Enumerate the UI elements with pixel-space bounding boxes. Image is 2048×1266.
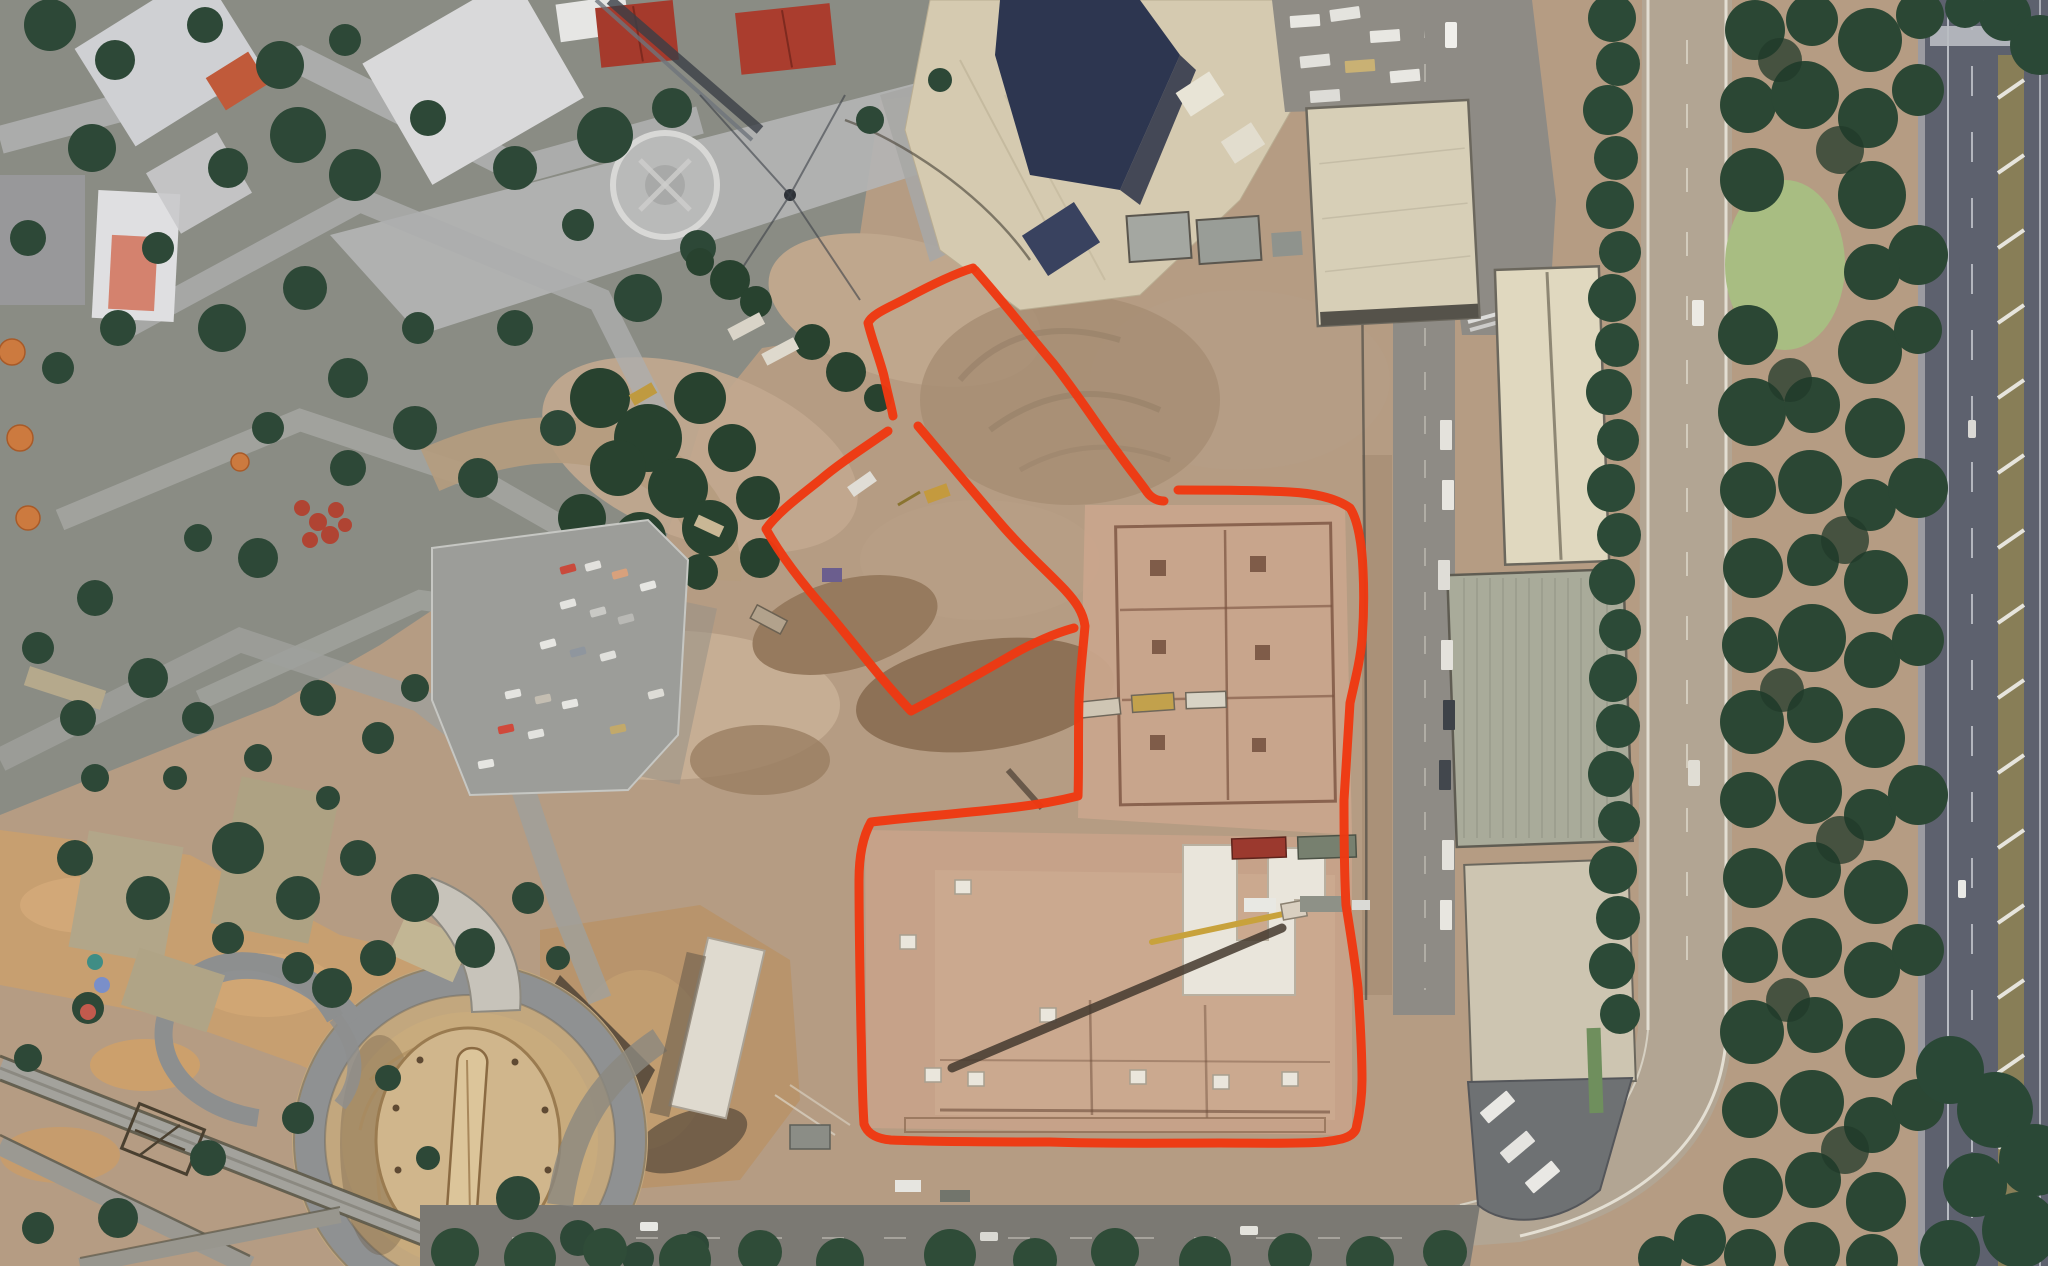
- post: [395, 1167, 402, 1174]
- site-shed: [1271, 231, 1303, 257]
- red-umbrella: [80, 1004, 96, 1020]
- trench-line: [940, 1110, 1330, 1112]
- buffer-tree-shade: [1821, 516, 1869, 564]
- park-tree: [276, 876, 320, 920]
- graded-swirl-area: [920, 295, 1220, 505]
- buffer-tree: [1778, 604, 1846, 672]
- yard-trailer: [1345, 59, 1376, 73]
- park-tree: [212, 922, 244, 954]
- equipment: [940, 1190, 970, 1202]
- buffer-tree: [1844, 244, 1900, 300]
- buffer-tree: [1892, 614, 1944, 666]
- park-tree: [496, 1176, 540, 1220]
- street-car: [1958, 880, 1966, 898]
- concrete-pad: [900, 935, 916, 949]
- park-tree: [42, 352, 74, 384]
- concrete-pad: [1040, 1008, 1056, 1022]
- park-tree: [128, 658, 168, 698]
- park-tree: [512, 882, 544, 914]
- concrete-pad: [925, 1068, 941, 1082]
- buffer-tree-shade: [1760, 668, 1804, 712]
- post: [393, 1105, 400, 1112]
- concrete-pad: [968, 1072, 984, 1086]
- haul-truck: [1186, 691, 1227, 708]
- warehouse-north: [1306, 100, 1479, 326]
- park-tree: [77, 580, 113, 616]
- small-car: [1352, 900, 1370, 910]
- street-trailer: [1438, 560, 1450, 590]
- red-umbrella: [321, 526, 339, 544]
- park-tree: [270, 107, 326, 163]
- white-van: [895, 1180, 921, 1192]
- street-tree-row: [1594, 136, 1638, 180]
- truck: [1688, 760, 1700, 786]
- street-tree-row: [1583, 85, 1633, 135]
- street-trailer: [1440, 420, 1452, 450]
- park-tree: [81, 764, 109, 792]
- preserved-tree: [674, 372, 726, 424]
- site-shed: [1197, 216, 1262, 264]
- park-tree: [493, 146, 537, 190]
- concrete-pad: [1282, 1072, 1298, 1086]
- buffer-tree: [1844, 942, 1900, 998]
- road-car: [1240, 1226, 1258, 1235]
- park-tree: [340, 840, 376, 876]
- park-tree: [187, 7, 223, 43]
- excavated-soil: [690, 725, 830, 795]
- preserved-tree: [590, 440, 646, 496]
- buffer-tree-shade: [1758, 38, 1802, 82]
- street-car: [1968, 420, 1976, 438]
- preserved-tree: [686, 248, 714, 276]
- street-tree-row: [1589, 654, 1637, 702]
- buffer-tree: [1782, 918, 1842, 978]
- post: [542, 1107, 549, 1114]
- buffer-tree: [1892, 64, 1944, 116]
- orange-dome-tent: [0, 339, 25, 365]
- park-tree: [238, 538, 278, 578]
- buffer-tree: [1845, 398, 1905, 458]
- park-tree: [283, 266, 327, 310]
- park-tree: [163, 766, 187, 790]
- park-tree: [458, 458, 498, 498]
- buffer-tree: [1846, 1172, 1906, 1232]
- park-tree: [60, 700, 96, 736]
- teal-umbrella: [87, 954, 103, 970]
- park-tree: [22, 1212, 54, 1244]
- concrete-pad: [955, 880, 971, 894]
- park-tree: [391, 874, 439, 922]
- street-tree-row: [1599, 231, 1641, 273]
- buffer-tree: [1722, 1082, 1778, 1138]
- orange-dome-tent: [7, 425, 33, 451]
- park-tree: [652, 88, 692, 128]
- red-umbrella: [338, 518, 352, 532]
- buffer-tree-shade: [1768, 358, 1812, 402]
- park-tree: [22, 632, 54, 664]
- street-tree-row: [1588, 274, 1636, 322]
- park-tree: [256, 41, 304, 89]
- buffer-tree: [1723, 1158, 1783, 1218]
- site-shed: [1126, 212, 1191, 262]
- buffer-tree-shade: [1816, 126, 1864, 174]
- buffer-tree: [1892, 924, 1944, 976]
- red-trailer: [1232, 837, 1287, 859]
- buffer-tree: [1723, 848, 1783, 908]
- red-canopy: [735, 3, 836, 75]
- concrete-pad: [1213, 1075, 1229, 1089]
- aerial-construction-scene: [0, 0, 2048, 1266]
- park-tree: [95, 40, 135, 80]
- buffer-tree: [1838, 320, 1902, 384]
- buffer-tree: [1720, 462, 1776, 518]
- street-tree-row: [1595, 323, 1639, 367]
- parking-lot-pad: [432, 520, 688, 795]
- park-tree: [24, 0, 76, 51]
- buffer-tree: [1894, 306, 1942, 354]
- buffer-tree-shade: [1766, 978, 1810, 1022]
- park-tree: [546, 946, 570, 970]
- park-tree: [184, 524, 212, 552]
- preserved-tree: [740, 286, 772, 318]
- park-tree: [300, 680, 336, 716]
- park-tree: [14, 1044, 42, 1072]
- road-car: [980, 1232, 998, 1241]
- park-tree: [540, 410, 576, 446]
- park-tree: [614, 274, 662, 322]
- buffer-tree: [1780, 1070, 1844, 1134]
- buffer-tree: [1844, 632, 1900, 688]
- street-trailer: [1439, 760, 1451, 790]
- park-tree: [328, 358, 368, 398]
- street-tree-row: [1589, 559, 1635, 605]
- street-tree-row: [1600, 994, 1640, 1034]
- buffer-tree: [1720, 77, 1776, 133]
- buffer-tree: [1844, 860, 1908, 924]
- park-tree: [362, 722, 394, 754]
- buffer-tree-shade: [1816, 816, 1864, 864]
- post: [512, 1059, 519, 1066]
- street-tree-row: [1597, 513, 1641, 557]
- purple-tarp: [822, 568, 842, 582]
- street-trailer: [1440, 900, 1452, 930]
- park-tree: [142, 232, 174, 264]
- park-tree: [330, 450, 366, 486]
- park-tree: [856, 106, 884, 134]
- satellite-screenshot: [0, 0, 2048, 1266]
- park-tree: [577, 107, 633, 163]
- footing: [1150, 560, 1166, 576]
- buffer-tree: [1778, 450, 1842, 514]
- park-tree: [316, 786, 340, 810]
- orange-dome-tent: [231, 453, 249, 471]
- footing: [1255, 645, 1270, 660]
- white-van: [1244, 898, 1276, 912]
- buffer-tree: [1722, 617, 1778, 673]
- street-tree-row: [1596, 704, 1640, 748]
- park-tree: [402, 312, 434, 344]
- street-tree-row: [1589, 846, 1637, 894]
- footing: [1250, 556, 1266, 572]
- street-tree-row: [1597, 419, 1639, 461]
- buffer-tree: [1722, 927, 1778, 983]
- park-tree: [329, 24, 361, 56]
- park-tree: [282, 952, 314, 984]
- street-tree-row: [1586, 369, 1632, 415]
- park-tree: [100, 310, 136, 346]
- haul-truck: [1079, 698, 1120, 718]
- street-tree-row: [1586, 181, 1634, 229]
- concrete-pad: [1130, 1070, 1146, 1084]
- park-tree: [375, 1065, 401, 1091]
- street-tree-row: [1589, 943, 1635, 989]
- truck: [1692, 300, 1704, 326]
- park-tree: [182, 702, 214, 734]
- yard-trailer: [1310, 89, 1341, 103]
- buffer-tree: [1720, 148, 1784, 212]
- buffer-tree: [1845, 1018, 1905, 1078]
- street-tree-row: [1596, 42, 1640, 86]
- buffer-tree: [1723, 538, 1783, 598]
- buffer-tree: [1845, 708, 1905, 768]
- preserved-tree: [826, 352, 866, 392]
- park-tree: [410, 100, 446, 136]
- red-umbrella: [302, 532, 318, 548]
- park-tree: [208, 148, 248, 188]
- park-tree: [360, 940, 396, 976]
- park-tree: [10, 220, 46, 256]
- red-umbrella: [328, 502, 344, 518]
- park-tree: [928, 68, 952, 92]
- buffer-tree-shade: [1821, 1126, 1869, 1174]
- buffer-tree: [1838, 8, 1902, 72]
- park-tree: [212, 822, 264, 874]
- street-tree-row: [1588, 751, 1634, 797]
- park-tree: [312, 968, 352, 1008]
- preserved-tree: [708, 424, 756, 472]
- park-tree: [98, 1198, 138, 1238]
- park-tree: [401, 674, 429, 702]
- park-tree: [329, 149, 381, 201]
- buffer-tree: [1888, 458, 1948, 518]
- preserved-tree: [794, 324, 830, 360]
- street-tree-row: [1587, 464, 1635, 512]
- buffer-tree: [1888, 765, 1948, 825]
- truck: [1445, 22, 1457, 48]
- park-tree: [562, 209, 594, 241]
- buffer-tree: [1778, 760, 1842, 824]
- warehouse-sage: [1447, 569, 1632, 847]
- street-trailer: [1442, 480, 1454, 510]
- park-tree: [68, 124, 116, 172]
- street-trailer: [1441, 640, 1453, 670]
- blue-umbrella: [94, 977, 110, 993]
- footing: [1150, 735, 1165, 750]
- footing: [1252, 738, 1266, 752]
- street-trailer: [1443, 700, 1455, 730]
- orange-dome-tent: [16, 506, 40, 530]
- street-tree-row: [1599, 609, 1641, 651]
- park-tree: [244, 744, 272, 772]
- hedge-strip: [1587, 1028, 1604, 1113]
- park-tree: [190, 1140, 226, 1176]
- road-car: [640, 1222, 658, 1231]
- street-trailer: [1442, 840, 1454, 870]
- park-tree: [198, 304, 246, 352]
- park-tree: [252, 412, 284, 444]
- flatbed-truck: [1300, 896, 1344, 912]
- street-tree-row: [1596, 896, 1640, 940]
- buffer-tree: [1720, 772, 1776, 828]
- pad-structure: [790, 1125, 830, 1149]
- park-tree: [393, 406, 437, 450]
- post: [545, 1167, 552, 1174]
- red-umbrella: [294, 500, 310, 516]
- buffer-tree: [1718, 305, 1778, 365]
- yard-trailer: [1290, 14, 1321, 28]
- haul-truck-yellow: [1131, 693, 1174, 713]
- footing: [1152, 640, 1166, 654]
- park-tree: [455, 928, 495, 968]
- park-tree: [282, 1102, 314, 1134]
- yard-trailer: [1370, 29, 1401, 43]
- park-tree: [126, 876, 170, 920]
- post: [417, 1057, 424, 1064]
- park-tree: [497, 310, 533, 346]
- park-tree: [57, 840, 93, 876]
- park-tree: [416, 1146, 440, 1170]
- street-tree-row: [1598, 801, 1640, 843]
